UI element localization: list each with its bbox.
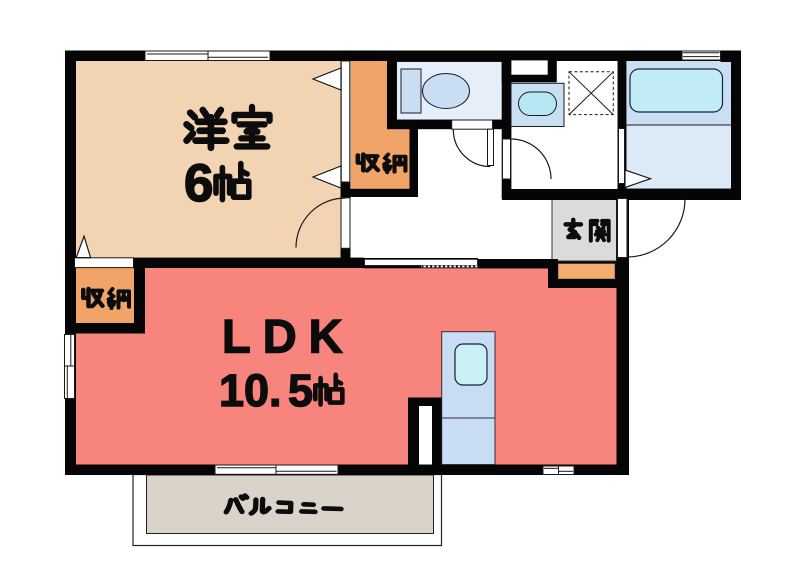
svg-text:10.: 10. — [219, 365, 282, 416]
svg-text:LDK: LDK — [222, 310, 355, 363]
svg-text:5: 5 — [288, 365, 313, 416]
svg-text:6: 6 — [184, 154, 213, 213]
